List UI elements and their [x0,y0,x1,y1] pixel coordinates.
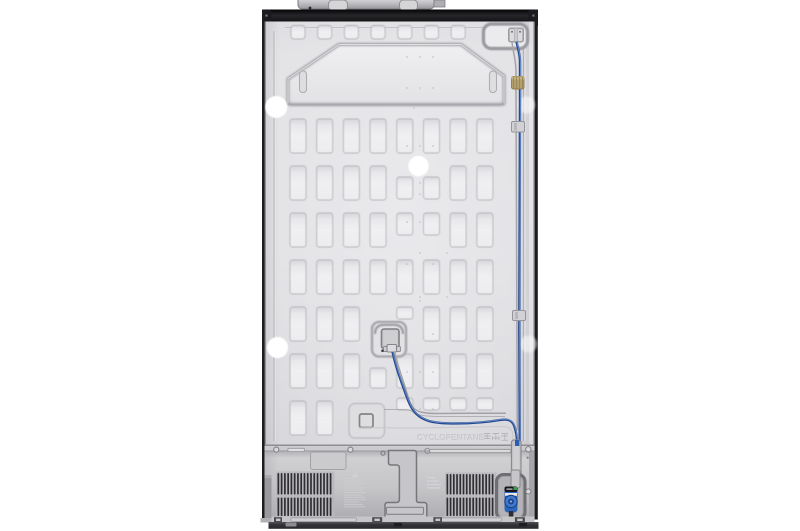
svg-text:CYCLOPENTANE: CYCLOPENTANE [417,434,485,443]
